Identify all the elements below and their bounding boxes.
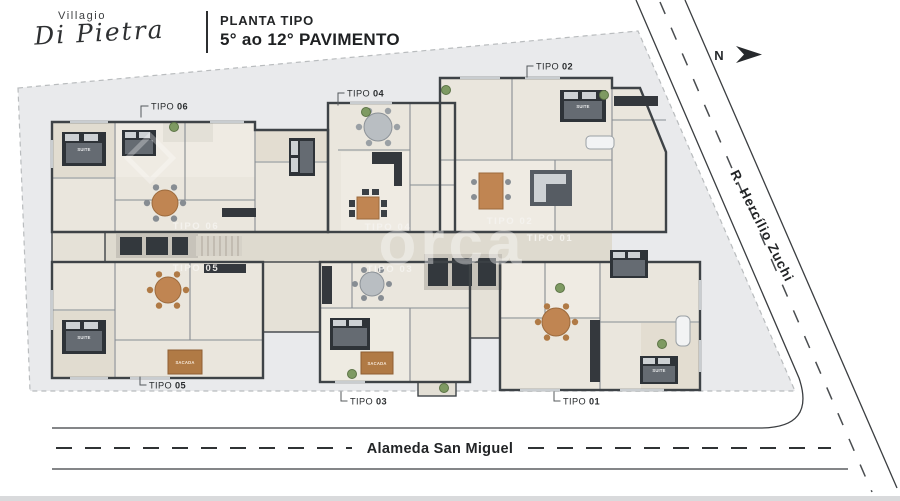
- site-plan: R. Hercílio Zuchi Alameda San Miguel N: [0, 0, 900, 501]
- unit-tipo-03-entry: [418, 382, 456, 396]
- elevator-core-a: [116, 234, 198, 258]
- footer-bar: [0, 496, 900, 501]
- svg-text:TIPO01: TIPO01: [563, 397, 600, 407]
- north-label: N: [714, 48, 723, 63]
- sofa: [530, 170, 572, 206]
- svg-text:TIPO03: TIPO03: [350, 397, 387, 407]
- callout-tipo01: TIPO01: [554, 392, 600, 407]
- street-alameda-san-miguel: Alameda San Miguel: [52, 441, 848, 469]
- suite-label: SUITE: [652, 368, 665, 373]
- floor-plan-page: Villagio Di Pietra PLANTA TIPO 5° ao 12°…: [0, 0, 900, 501]
- bed: [610, 250, 648, 278]
- balcony-sacada: SACADA: [168, 350, 202, 374]
- connector-left: [263, 262, 320, 332]
- svg-text:TIPO05: TIPO05: [149, 381, 186, 391]
- floor-label-tipo06: TIPO 06: [173, 221, 220, 232]
- suite-label: SUITE: [77, 335, 90, 340]
- bed: [330, 318, 370, 350]
- building-footprint: SACADA SACADA SUITE SUITE SUITE SUITE: [52, 78, 700, 396]
- street-label-alameda: Alameda San Miguel: [367, 441, 513, 457]
- north-indicator: N: [714, 46, 762, 63]
- north-arrow-icon: [736, 46, 762, 63]
- bed: [289, 138, 315, 176]
- callout-tipo03: TIPO03: [341, 392, 387, 407]
- balcony-sacada: SACADA: [361, 352, 393, 374]
- svg-text:TIPO04: TIPO04: [347, 89, 385, 99]
- floor-label-tipo05: TIPO 05: [173, 263, 220, 274]
- suite-label: SUITE: [77, 147, 90, 152]
- stairwell: [196, 236, 242, 256]
- sacada-label: SACADA: [367, 361, 386, 366]
- suite-label: SUITE: [576, 104, 589, 109]
- svg-text:TIPO02: TIPO02: [536, 62, 573, 72]
- svg-text:TIPO06: TIPO06: [151, 102, 188, 112]
- floor-label-tipo02: TIPO 02: [487, 216, 534, 227]
- sacada-label: SACADA: [175, 360, 194, 365]
- floor-label-tipo01: TIPO 01: [527, 233, 574, 244]
- left-stub: [52, 232, 105, 262]
- floor-label-tipo03: TIPO 03: [367, 264, 414, 275]
- floor-label-tipo04: TIPO 04: [365, 222, 412, 233]
